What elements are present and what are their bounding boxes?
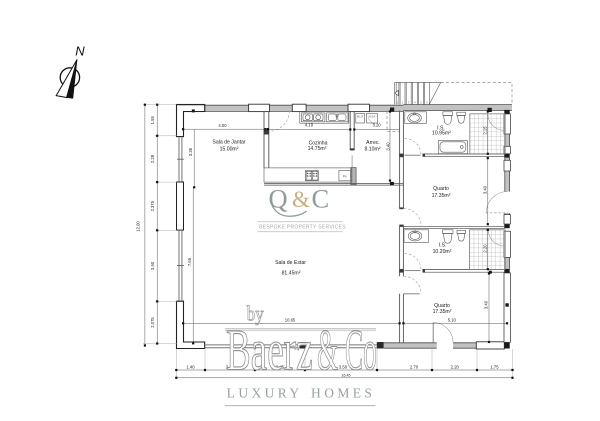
svg-text:4.00: 4.00 — [218, 123, 227, 128]
svg-text:BESPOKE PROPERTY SERVICES: BESPOKE PROPERTY SERVICES — [259, 224, 346, 230]
svg-text:&: & — [292, 187, 310, 212]
svg-text:1.75: 1.75 — [490, 364, 499, 369]
svg-text:8.10m²: 8.10m² — [365, 146, 381, 152]
svg-text:frig: frig — [343, 174, 347, 178]
svg-text:2.075: 2.075 — [150, 317, 155, 328]
svg-text:I.S.: I.S. — [439, 242, 447, 248]
svg-text:81.45m²: 81.45m² — [282, 271, 301, 277]
svg-text:Sala de Jantar: Sala de Jantar — [212, 139, 245, 145]
svg-text:C: C — [312, 184, 330, 214]
svg-text:15.00m²: 15.00m² — [220, 146, 239, 152]
svg-text:10.95m²: 10.95m² — [432, 130, 451, 136]
svg-text:2.20: 2.20 — [451, 364, 460, 369]
svg-text:12.00: 12.00 — [135, 221, 140, 232]
svg-text:M.S.R: M.S.R — [369, 115, 376, 118]
svg-text:4.10: 4.10 — [305, 123, 314, 128]
svg-text:3.20: 3.20 — [373, 123, 382, 128]
svg-text:Arrec.: Arrec. — [366, 140, 380, 146]
svg-text:2.70: 2.70 — [410, 364, 419, 369]
svg-text:17.35m²: 17.35m² — [432, 193, 451, 199]
svg-text:14.75m²: 14.75m² — [308, 146, 327, 152]
svg-text:3.40: 3.40 — [483, 185, 488, 194]
svg-text:17.35m²: 17.35m² — [433, 309, 452, 315]
svg-text:1.40: 1.40 — [186, 364, 195, 369]
svg-text:& Co: & Co — [317, 318, 377, 382]
svg-text:2.20: 2.20 — [483, 244, 488, 253]
svg-text:2.15: 2.15 — [483, 126, 488, 135]
svg-text:2.28: 2.28 — [150, 154, 155, 163]
svg-text:LUXURY HOMES: LUXURY HOMES — [227, 385, 376, 400]
svg-text:M.L.R: M.L.R — [357, 115, 364, 118]
svg-text:3.50: 3.50 — [150, 261, 155, 270]
svg-text:3.35: 3.35 — [188, 147, 193, 156]
svg-text:Quarto: Quarto — [433, 186, 449, 192]
svg-text:2.375: 2.375 — [150, 200, 155, 211]
svg-text:Baerz: Baerz — [226, 318, 313, 382]
svg-text:Q: Q — [269, 184, 288, 214]
svg-text:10.20m²: 10.20m² — [433, 249, 452, 255]
svg-text:3.40: 3.40 — [483, 300, 488, 309]
svg-text:7.65: 7.65 — [187, 257, 192, 266]
svg-text:1.55: 1.55 — [150, 116, 155, 125]
svg-text:5.10: 5.10 — [448, 317, 457, 322]
svg-text:Sala de Estar: Sala de Estar — [275, 260, 306, 266]
svg-text:3.40: 3.40 — [386, 142, 391, 151]
svg-text:N: N — [75, 44, 85, 59]
